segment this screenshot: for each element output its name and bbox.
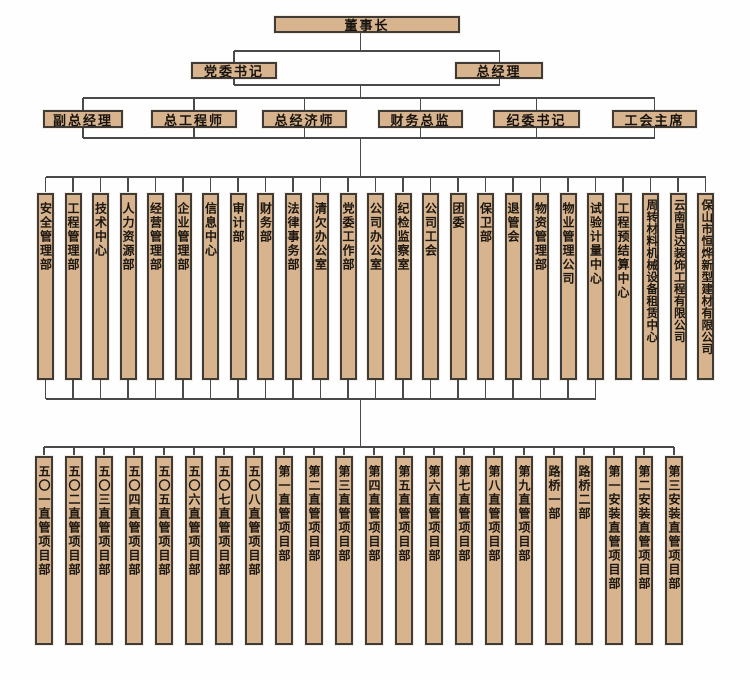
stub-department-bottom-2 xyxy=(100,380,102,399)
department-box-label: 纪检监察室 xyxy=(397,202,409,378)
stub-project-top-16 xyxy=(523,447,525,456)
department-box-label: 云南昌达装饰工程有限公司 xyxy=(672,199,684,378)
stub-department-top-7 xyxy=(237,177,239,193)
stub-department-top-5 xyxy=(182,177,184,193)
stub-project-top-8 xyxy=(283,447,285,456)
stub-department-bottom-12 xyxy=(375,380,377,399)
stub-department-bottom-5 xyxy=(182,380,184,399)
project-box: 第七直管项目部 xyxy=(455,456,473,645)
stub-department-bottom-17 xyxy=(512,380,514,399)
stub-department-top-21 xyxy=(622,177,624,193)
spine-chairman-drop xyxy=(360,32,362,51)
stub-department-top-14 xyxy=(430,177,432,193)
stub-department-top-8 xyxy=(265,177,267,193)
stub-department-bottom-6 xyxy=(210,380,212,399)
spine-level2-drop xyxy=(360,85,362,98)
department-box: 周转材料机械设备租赁中心 xyxy=(642,193,659,380)
stub-project-top-6 xyxy=(223,447,225,456)
stub-department-top-18 xyxy=(540,177,542,193)
stub-department-bottom-15 xyxy=(457,380,459,399)
project-box: 五〇四直管项目部 xyxy=(125,456,143,645)
leader-label: 副总经理 xyxy=(53,110,113,129)
project-box-label: 第一安装直管项目部 xyxy=(608,465,620,643)
department-box: 物资管理部 xyxy=(532,193,549,380)
leader-box-chief-economist: 总经济师 xyxy=(262,110,347,128)
stub-project-top-3 xyxy=(133,447,135,456)
stub-department-bottom-20 xyxy=(595,380,597,399)
department-box: 安全管理部 xyxy=(37,193,54,380)
project-box-label: 第三安装直管项目部 xyxy=(668,465,680,643)
stub-project-top-15 xyxy=(493,447,495,456)
stub-department-bottom-13 xyxy=(402,380,404,399)
project-box-label: 五〇四直管项目部 xyxy=(128,465,140,643)
stub-department-top-24 xyxy=(705,177,707,193)
stub-leader-top-4 xyxy=(536,98,538,110)
stub-project-top-7 xyxy=(253,447,255,456)
project-box-label: 第六直管项目部 xyxy=(428,465,440,643)
stub-project-top-5 xyxy=(193,447,195,456)
department-box-label: 物资管理部 xyxy=(535,202,547,378)
project-box: 第六直管项目部 xyxy=(425,456,443,645)
department-box-label: 企业管理部 xyxy=(177,202,189,378)
department-box: 纪检监察室 xyxy=(395,193,412,380)
stub-project-top-18 xyxy=(583,447,585,456)
department-box-label: 党委工作部 xyxy=(342,202,354,378)
department-box-label: 清欠办公室 xyxy=(315,202,327,378)
department-box: 工程管理部 xyxy=(65,193,82,380)
project-box: 五〇三直管项目部 xyxy=(95,456,113,645)
project-box: 第二安装直管项目部 xyxy=(635,456,653,645)
project-box: 路桥一部 xyxy=(545,456,563,645)
department-box: 信息中心 xyxy=(202,193,219,380)
project-box: 第一安装直管项目部 xyxy=(605,456,623,645)
department-box-label: 技术中心 xyxy=(95,202,107,378)
level3-top-bus xyxy=(83,97,655,99)
department-box: 保山市恒烨新型建材有限公司 xyxy=(697,193,714,380)
project-box: 五〇五直管项目部 xyxy=(155,456,173,645)
stub-department-top-17 xyxy=(512,177,514,193)
stub-department-top-0 xyxy=(45,177,47,193)
stub-department-bottom-4 xyxy=(155,380,157,399)
project-box-label: 路桥一部 xyxy=(548,465,560,643)
stub-department-bottom-19 xyxy=(567,380,569,399)
leader-label: 总工程师 xyxy=(164,110,224,129)
department-box: 退管会 xyxy=(505,193,522,380)
leader-box-discipline-secretary: 纪委书记 xyxy=(493,110,580,128)
department-box: 企业管理部 xyxy=(175,193,192,380)
leader-label: 财务总监 xyxy=(390,110,450,129)
stub-department-bottom-16 xyxy=(485,380,487,399)
project-box: 第二直管项目部 xyxy=(305,456,323,645)
project-box-label: 第五直管项目部 xyxy=(398,465,410,643)
general-manager-box: 总经理 xyxy=(455,62,543,79)
party-secretary-label: 党委书记 xyxy=(204,61,264,80)
stub-department-top-10 xyxy=(320,177,322,193)
project-box-label: 五〇一直管项目部 xyxy=(38,465,50,643)
project-box: 第三直管项目部 xyxy=(335,456,353,645)
project-box-label: 五〇六直管项目部 xyxy=(188,465,200,643)
project-box-label: 五〇三直管项目部 xyxy=(98,465,110,643)
org-chart: 董事长 党委书记 总经理 副总经理 总工程师 总经济师 财务总监 纪委书记 工会… xyxy=(0,0,750,680)
stub-leader-top-3 xyxy=(420,98,422,110)
department-box: 工程预结算中心 xyxy=(615,193,632,380)
level2-bottom-bar xyxy=(234,84,500,86)
project-box-label: 五〇五直管项目部 xyxy=(158,465,170,643)
project-box-label: 第四直管项目部 xyxy=(368,465,380,643)
project-box: 五〇一直管项目部 xyxy=(35,456,53,645)
project-box-label: 第二安装直管项目部 xyxy=(638,465,650,643)
stub-department-bottom-3 xyxy=(127,380,129,399)
department-box: 清欠办公室 xyxy=(312,193,329,380)
department-box-label: 财务部 xyxy=(260,202,272,378)
department-box: 保卫部 xyxy=(477,193,494,380)
department-box: 公司工会 xyxy=(422,193,439,380)
stub-department-top-9 xyxy=(292,177,294,193)
department-box-label: 公司工会 xyxy=(425,202,437,378)
stub-department-bottom-14 xyxy=(430,380,432,399)
project-box: 五〇八直管项目部 xyxy=(245,456,263,645)
department-box: 经营管理部 xyxy=(147,193,164,380)
department-box-label: 物业管理公司 xyxy=(562,202,574,378)
stub-leader-top-2 xyxy=(304,98,306,110)
project-box: 五〇七直管项目部 xyxy=(215,456,233,645)
stub-department-top-12 xyxy=(375,177,377,193)
department-box: 人力资源部 xyxy=(120,193,137,380)
department-box-label: 公司办公室 xyxy=(370,202,382,378)
stub-department-top-19 xyxy=(567,177,569,193)
stub-leader-top-1 xyxy=(193,98,195,110)
leader-box-chief-engineer: 总工程师 xyxy=(151,110,237,128)
stub-department-top-4 xyxy=(155,177,157,193)
project-box-label: 路桥二部 xyxy=(578,465,590,643)
stub-department-bottom-9 xyxy=(292,380,294,399)
party-secretary-box: 党委书记 xyxy=(191,62,277,79)
department-box: 物业管理公司 xyxy=(560,193,577,380)
stub-leader-top-5 xyxy=(654,98,656,110)
stub-project-top-19 xyxy=(613,447,615,456)
stub-department-top-6 xyxy=(210,177,212,193)
stub-department-bottom-11 xyxy=(347,380,349,399)
stub-leader-top-0 xyxy=(82,98,84,110)
stub-department-bottom-8 xyxy=(265,380,267,399)
department-box-label: 人力资源部 xyxy=(122,202,134,378)
department-box-label: 退管会 xyxy=(507,202,519,378)
department-box-label: 团委 xyxy=(452,202,464,378)
project-box-label: 五〇七直管项目部 xyxy=(218,465,230,643)
chairman-box: 董事长 xyxy=(274,16,460,33)
stub-department-top-23 xyxy=(677,177,679,193)
department-box: 试验计量中心 xyxy=(587,193,604,380)
stub-project-top-21 xyxy=(673,447,675,456)
department-box-label: 试验计量中心 xyxy=(590,202,602,378)
leader-box-union-chairman: 工会主席 xyxy=(612,110,697,128)
department-box: 审计部 xyxy=(230,193,247,380)
stub-department-bottom-1 xyxy=(72,380,74,399)
department-box-label: 审计部 xyxy=(232,202,244,378)
stub-project-top-2 xyxy=(103,447,105,456)
department-box-label: 周转材料机械设备租赁中心 xyxy=(645,199,657,378)
stub-department-top-1 xyxy=(72,177,74,193)
department-box-label: 工程管理部 xyxy=(67,202,79,378)
stub-department-bottom-0 xyxy=(45,380,47,399)
department-box-label: 法律事务部 xyxy=(287,202,299,378)
stub-department-top-16 xyxy=(485,177,487,193)
stub-department-top-20 xyxy=(595,177,597,193)
project-box: 第四直管项目部 xyxy=(365,456,383,645)
department-box: 法律事务部 xyxy=(285,193,302,380)
project-top-bus xyxy=(44,446,674,448)
stub-project-top-20 xyxy=(643,447,645,456)
department-box-label: 安全管理部 xyxy=(40,202,52,378)
project-box-label: 第八直管项目部 xyxy=(488,465,500,643)
department-box-label: 经营管理部 xyxy=(150,202,162,378)
department-box-label: 信息中心 xyxy=(205,202,217,378)
stub-department-top-13 xyxy=(402,177,404,193)
stub-department-top-15 xyxy=(457,177,459,193)
leader-box-finance-director: 财务总监 xyxy=(378,110,463,128)
stub-general-manager-top xyxy=(499,51,501,62)
project-box: 第九直管项目部 xyxy=(515,456,533,645)
project-box-label: 五〇八直管项目部 xyxy=(248,465,260,643)
project-box-label: 第三直管项目部 xyxy=(338,465,350,643)
stub-department-bottom-10 xyxy=(320,380,322,399)
project-box: 路桥二部 xyxy=(575,456,593,645)
stub-project-top-12 xyxy=(403,447,405,456)
stub-department-top-11 xyxy=(347,177,349,193)
department-box-label: 工程预结算中心 xyxy=(617,202,629,378)
project-box: 五〇六直管项目部 xyxy=(185,456,203,645)
leader-label: 总经济师 xyxy=(274,110,334,129)
level2-connector-bar xyxy=(234,50,500,52)
department-box: 党委工作部 xyxy=(340,193,357,380)
chairman-label: 董事长 xyxy=(344,15,389,34)
level3-bottom-bus xyxy=(83,137,655,139)
project-box: 第三安装直管项目部 xyxy=(665,456,683,645)
department-box-label: 保山市恒烨新型建材有限公司 xyxy=(700,199,712,378)
stub-department-top-3 xyxy=(127,177,129,193)
project-box: 五〇二直管项目部 xyxy=(65,456,83,645)
stub-project-top-11 xyxy=(373,447,375,456)
leader-label: 纪委书记 xyxy=(506,110,566,129)
project-box-label: 第一直管项目部 xyxy=(278,465,290,643)
spine-project-drop xyxy=(360,399,362,447)
leader-label: 工会主席 xyxy=(624,110,684,129)
stub-party-secretary-top xyxy=(233,51,235,62)
department-box: 团委 xyxy=(450,193,467,380)
department-box-label: 保卫部 xyxy=(480,202,492,378)
stub-project-top-0 xyxy=(43,447,45,456)
department-bottom-bus xyxy=(46,398,596,400)
department-box: 技术中心 xyxy=(92,193,109,380)
stub-department-top-22 xyxy=(650,177,652,193)
general-manager-label: 总经理 xyxy=(476,61,521,80)
stub-project-top-14 xyxy=(463,447,465,456)
stub-project-top-1 xyxy=(73,447,75,456)
department-box: 财务部 xyxy=(257,193,274,380)
project-box-label: 第九直管项目部 xyxy=(518,465,530,643)
stub-project-top-13 xyxy=(433,447,435,456)
project-box: 第八直管项目部 xyxy=(485,456,503,645)
stub-project-top-10 xyxy=(343,447,345,456)
stub-project-top-9 xyxy=(313,447,315,456)
stub-department-bottom-18 xyxy=(540,380,542,399)
project-box-label: 五〇二直管项目部 xyxy=(68,465,80,643)
department-box: 公司办公室 xyxy=(367,193,384,380)
spine-level3-drop xyxy=(360,138,362,177)
department-box: 云南昌达装饰工程有限公司 xyxy=(670,193,687,380)
leader-box-deputy-gm: 副总经理 xyxy=(43,110,123,128)
project-box: 第五直管项目部 xyxy=(395,456,413,645)
stub-department-bottom-7 xyxy=(237,380,239,399)
stub-project-top-17 xyxy=(553,447,555,456)
project-box-label: 第二直管项目部 xyxy=(308,465,320,643)
stub-project-top-4 xyxy=(163,447,165,456)
project-box: 第一直管项目部 xyxy=(275,456,293,645)
stub-department-top-2 xyxy=(100,177,102,193)
project-box-label: 第七直管项目部 xyxy=(458,465,470,643)
